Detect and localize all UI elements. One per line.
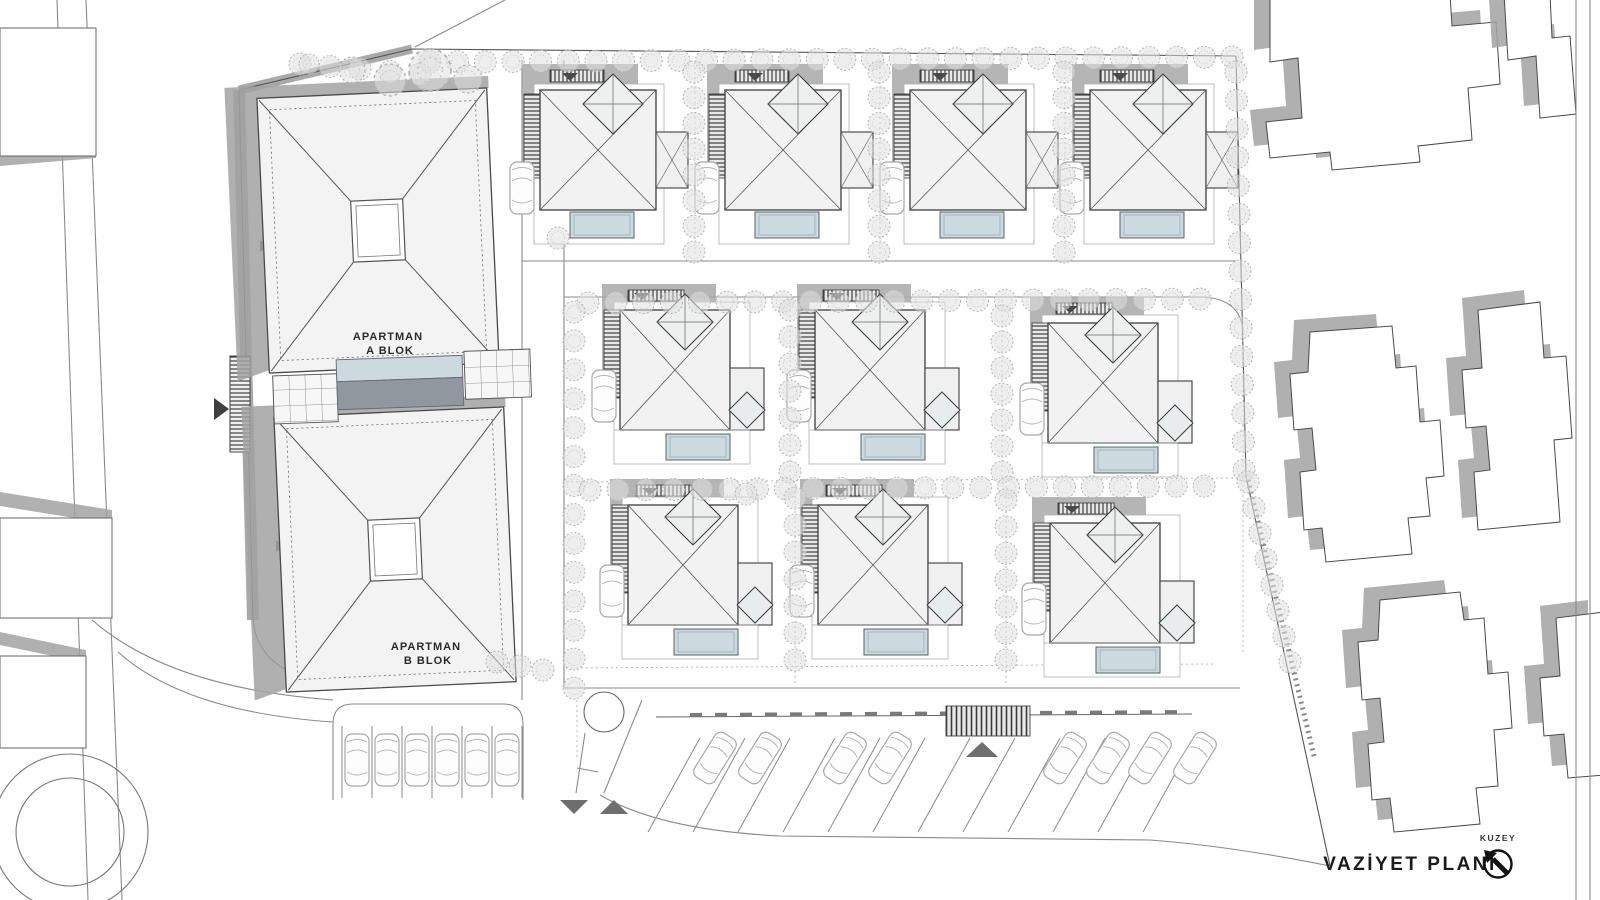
tree bbox=[1237, 471, 1259, 493]
parked-car bbox=[1041, 730, 1089, 787]
right-context bbox=[1250, 0, 1600, 900]
neighbor-building bbox=[1290, 326, 1444, 562]
tree bbox=[1110, 47, 1132, 69]
tree bbox=[784, 487, 806, 509]
road-stub bbox=[415, 0, 505, 47]
tree bbox=[1243, 497, 1265, 519]
tree bbox=[779, 434, 801, 456]
parked-car bbox=[375, 734, 399, 786]
roundabout-inner bbox=[16, 778, 124, 886]
parked-car bbox=[1084, 730, 1132, 787]
car-icon bbox=[821, 730, 869, 787]
tree bbox=[563, 648, 585, 670]
villa-2 bbox=[695, 64, 873, 244]
tree bbox=[1261, 574, 1283, 596]
tree bbox=[967, 290, 989, 312]
exit-arrow-down-icon bbox=[560, 800, 588, 814]
tree bbox=[1193, 475, 1215, 497]
tree bbox=[1078, 289, 1100, 311]
tree bbox=[688, 291, 710, 313]
parked-car bbox=[465, 734, 489, 786]
tree bbox=[723, 49, 745, 71]
tree bbox=[942, 477, 964, 499]
tree bbox=[1161, 288, 1183, 310]
tree bbox=[605, 292, 627, 314]
tree bbox=[1053, 112, 1075, 134]
tree bbox=[683, 138, 705, 160]
bush bbox=[299, 54, 319, 74]
tree bbox=[557, 50, 579, 72]
tree bbox=[751, 49, 773, 71]
tree bbox=[1229, 260, 1251, 282]
entrance-circle bbox=[584, 692, 624, 732]
tree bbox=[886, 477, 908, 499]
apartment-blocks: APARTMAN A BLOK APARTMAN B BLOK bbox=[224, 76, 532, 701]
tree bbox=[1227, 175, 1249, 197]
car-icon bbox=[866, 730, 914, 787]
tree bbox=[563, 301, 585, 323]
parked-car bbox=[495, 734, 519, 786]
tree bbox=[683, 61, 705, 83]
tree bbox=[1165, 475, 1187, 497]
car-icon bbox=[736, 730, 784, 787]
tree bbox=[1255, 548, 1277, 570]
tree bbox=[1000, 47, 1022, 69]
tree bbox=[683, 190, 705, 212]
tree bbox=[683, 87, 705, 109]
tree bbox=[607, 479, 629, 501]
apartment-b-block bbox=[241, 395, 518, 701]
car-icon bbox=[1171, 730, 1219, 787]
parked-car bbox=[1126, 730, 1174, 787]
tree bbox=[563, 446, 585, 468]
tree bbox=[995, 569, 1017, 591]
right-neighbor-buildings bbox=[1250, 0, 1600, 832]
tree bbox=[683, 112, 705, 134]
tree bbox=[563, 561, 585, 583]
tree bbox=[1230, 288, 1252, 310]
tree bbox=[502, 51, 524, 73]
tree bbox=[563, 677, 585, 699]
tree bbox=[1231, 374, 1253, 396]
tree bbox=[995, 622, 1017, 644]
tree bbox=[563, 619, 585, 641]
tree bbox=[1279, 651, 1301, 673]
tree bbox=[1267, 600, 1289, 622]
tree bbox=[1053, 241, 1075, 263]
tree bbox=[1232, 431, 1254, 453]
tree bbox=[1083, 47, 1105, 69]
tree bbox=[868, 164, 890, 186]
tree bbox=[883, 290, 905, 312]
bush bbox=[374, 64, 406, 96]
tree bbox=[995, 516, 1017, 538]
tree bbox=[868, 87, 890, 109]
tree bbox=[563, 388, 585, 410]
tree bbox=[1138, 47, 1160, 69]
villa-3 bbox=[880, 64, 1058, 244]
tree bbox=[532, 659, 554, 681]
tree bbox=[991, 357, 1013, 379]
tree bbox=[1226, 118, 1248, 140]
parked-car bbox=[435, 734, 459, 786]
villa-10 bbox=[1022, 497, 1195, 677]
tree bbox=[806, 49, 828, 71]
parked-car bbox=[866, 730, 914, 787]
tree bbox=[917, 48, 939, 70]
tree bbox=[1228, 203, 1250, 225]
parking-south-cars bbox=[691, 730, 1219, 787]
tree bbox=[800, 291, 822, 313]
tree bbox=[914, 477, 936, 499]
tree bbox=[1053, 164, 1075, 186]
ramp-arrow-up-icon bbox=[966, 742, 998, 757]
tree bbox=[779, 407, 801, 429]
tree bbox=[1227, 146, 1249, 168]
tree bbox=[640, 50, 662, 72]
car-icon bbox=[1126, 730, 1174, 787]
tree bbox=[779, 353, 801, 375]
tree bbox=[563, 504, 585, 526]
parking-south bbox=[560, 692, 1219, 832]
parked-car bbox=[1171, 730, 1219, 787]
tree bbox=[691, 478, 713, 500]
neighbor-building bbox=[0, 656, 86, 748]
tree bbox=[784, 514, 806, 536]
neighbor-building bbox=[1504, 0, 1576, 118]
tree bbox=[1109, 476, 1131, 498]
tree bbox=[939, 290, 961, 312]
tree bbox=[1231, 345, 1253, 367]
parked-car bbox=[821, 730, 869, 787]
tree bbox=[1225, 61, 1247, 83]
plan-title: VAZİYET PLANI bbox=[1323, 854, 1497, 875]
tree bbox=[1053, 215, 1075, 237]
villa-9 bbox=[790, 479, 963, 659]
car-icon bbox=[1084, 730, 1132, 787]
tree bbox=[563, 417, 585, 439]
tree bbox=[779, 299, 801, 321]
tree bbox=[1230, 317, 1252, 339]
tree bbox=[868, 215, 890, 237]
bush bbox=[454, 65, 482, 93]
tree bbox=[834, 48, 856, 70]
tree bbox=[1166, 46, 1188, 68]
tree bbox=[784, 622, 806, 644]
tree bbox=[1022, 289, 1044, 311]
bush bbox=[409, 49, 451, 91]
north-label: KUZEY bbox=[1480, 833, 1516, 843]
crosswalk-ramp-hatch bbox=[946, 706, 1030, 736]
neighbor-building bbox=[0, 518, 112, 618]
tree bbox=[784, 568, 806, 590]
tree bbox=[1193, 46, 1215, 68]
tree bbox=[784, 595, 806, 617]
site-plan-sheet: APARTMAN A BLOK APARTMAN B BLOK bbox=[0, 0, 1600, 900]
parked-car bbox=[691, 730, 739, 787]
tree bbox=[779, 326, 801, 348]
tree bbox=[991, 383, 1013, 405]
tree bbox=[1027, 47, 1049, 69]
villa-8 bbox=[600, 479, 773, 659]
site-plan-canvas: APARTMAN A BLOK APARTMAN B BLOK bbox=[0, 0, 1600, 900]
tree bbox=[661, 292, 683, 314]
tree bbox=[1249, 522, 1271, 544]
stall-line bbox=[1008, 738, 1060, 832]
tree bbox=[830, 477, 852, 499]
tree bbox=[855, 290, 877, 312]
tree bbox=[1050, 289, 1072, 311]
bush bbox=[339, 57, 365, 83]
tree bbox=[1053, 87, 1075, 109]
tree bbox=[868, 241, 890, 263]
tree bbox=[995, 489, 1017, 511]
neighbor-building bbox=[1266, 0, 1500, 170]
tree bbox=[683, 164, 705, 186]
tree bbox=[1054, 476, 1076, 498]
terrace-grid-west bbox=[273, 374, 339, 424]
bush bbox=[735, 483, 757, 505]
car-icon bbox=[691, 730, 739, 787]
tree bbox=[319, 56, 341, 78]
tree bbox=[633, 292, 655, 314]
tree bbox=[991, 435, 1013, 457]
tree bbox=[613, 50, 635, 72]
tree bbox=[868, 138, 890, 160]
tree bbox=[858, 477, 880, 499]
tree bbox=[1053, 190, 1075, 212]
tree bbox=[911, 290, 933, 312]
tree bbox=[530, 50, 552, 72]
tree bbox=[868, 61, 890, 83]
tree bbox=[509, 655, 531, 677]
parking-west bbox=[333, 704, 523, 800]
bush bbox=[547, 227, 569, 249]
tree bbox=[1137, 475, 1159, 497]
tree bbox=[563, 330, 585, 352]
pool-shadow bbox=[337, 377, 464, 409]
tree bbox=[995, 649, 1017, 671]
tree bbox=[1053, 138, 1075, 160]
stall-line bbox=[783, 738, 835, 832]
tree bbox=[972, 48, 994, 70]
tree bbox=[683, 241, 705, 263]
entry-arrow-icon bbox=[214, 398, 229, 420]
tree bbox=[1133, 288, 1155, 310]
tree bbox=[991, 409, 1013, 431]
parked-car bbox=[345, 734, 369, 786]
left-neighbor-buildings bbox=[0, 28, 112, 748]
tree bbox=[563, 590, 585, 612]
title-block: KUZEY VAZİYET PLANI bbox=[1323, 833, 1516, 878]
tree bbox=[1228, 232, 1250, 254]
tree bbox=[744, 291, 766, 313]
tree bbox=[663, 479, 685, 501]
tree bbox=[635, 479, 657, 501]
tree bbox=[683, 215, 705, 237]
parked-car bbox=[736, 730, 784, 787]
villa-7 bbox=[1020, 297, 1193, 477]
tree bbox=[1081, 476, 1103, 498]
tree bbox=[995, 542, 1017, 564]
tree bbox=[585, 50, 607, 72]
tree bbox=[563, 359, 585, 381]
tree bbox=[868, 190, 890, 212]
tree bbox=[1273, 625, 1295, 647]
tree bbox=[779, 49, 801, 71]
tree bbox=[991, 331, 1013, 353]
tree bbox=[827, 290, 849, 312]
tree bbox=[784, 649, 806, 671]
tree bbox=[1232, 402, 1254, 424]
tree bbox=[1189, 288, 1211, 310]
tree bbox=[970, 477, 992, 499]
tree bbox=[563, 532, 585, 554]
stall-line bbox=[918, 738, 970, 832]
tree bbox=[486, 651, 508, 673]
tree bbox=[991, 305, 1013, 327]
tree bbox=[1106, 289, 1128, 311]
stall-line bbox=[648, 738, 700, 832]
terrace-grid-east bbox=[464, 349, 532, 399]
car-icon bbox=[1041, 730, 1089, 787]
villa-1 bbox=[510, 64, 688, 244]
tree bbox=[1026, 476, 1048, 498]
tree bbox=[1053, 61, 1075, 83]
tree bbox=[784, 541, 806, 563]
tree bbox=[944, 48, 966, 70]
tree bbox=[889, 48, 911, 70]
tree bbox=[868, 112, 890, 134]
villa-4 bbox=[1060, 64, 1238, 244]
tree bbox=[995, 596, 1017, 618]
roundabout-outer bbox=[0, 754, 148, 900]
tree bbox=[716, 291, 738, 313]
neighbor-building bbox=[1358, 592, 1512, 832]
tree bbox=[579, 479, 601, 501]
parked-car bbox=[405, 734, 429, 786]
neighbor-building bbox=[0, 28, 96, 156]
tree bbox=[779, 380, 801, 402]
tree bbox=[1226, 89, 1248, 111]
